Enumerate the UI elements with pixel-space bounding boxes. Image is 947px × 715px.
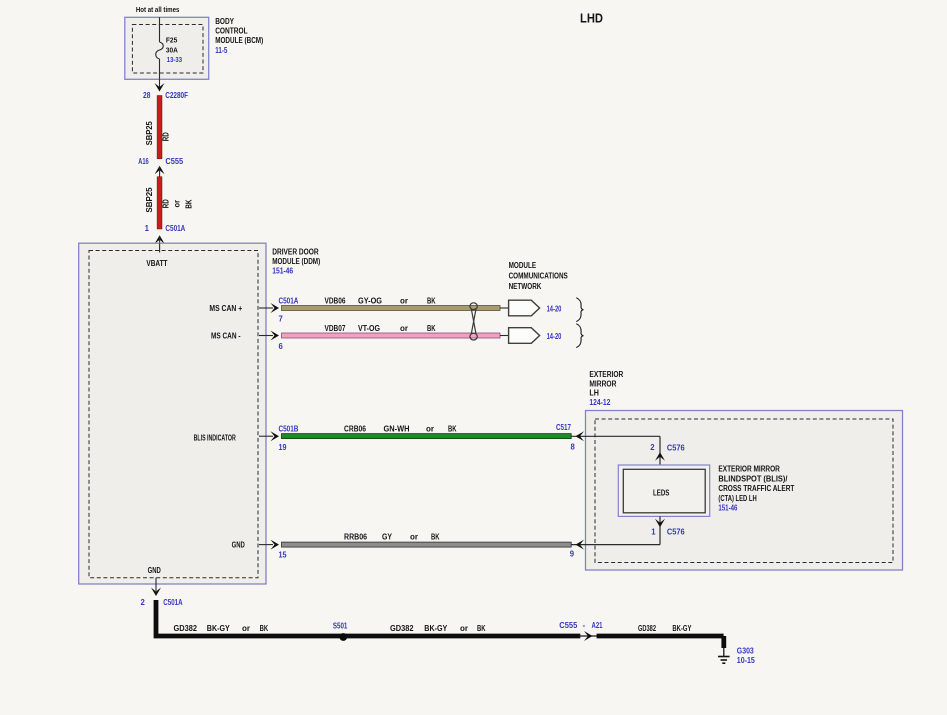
svg-text:(CTA) LED LH: (CTA) LED LH [718,494,756,503]
svg-text:GY: GY [382,532,393,541]
svg-text:or: or [400,296,408,305]
svg-text:SBP25: SBP25 [145,187,154,213]
svg-text:BK-GY: BK-GY [424,624,448,633]
svg-text:SBP25: SBP25 [145,121,154,146]
svg-text:GD382: GD382 [174,624,198,633]
svg-text:LEDS: LEDS [653,488,670,497]
svg-text:CRB06: CRB06 [344,425,366,434]
svg-text:14-20: 14-20 [547,304,562,313]
svg-text:MODULE (DDM): MODULE (DDM) [272,257,320,266]
svg-text:or: or [172,200,181,208]
svg-text:GND: GND [232,540,245,549]
svg-text:151-46: 151-46 [272,267,293,276]
svg-text:14-20: 14-20 [547,332,562,341]
svg-text:10-15: 10-15 [737,656,755,665]
svg-text:MODULE (BCM): MODULE (BCM) [215,36,263,45]
svg-text:C2280F: C2280F [165,91,188,100]
svg-text:BK: BK [431,532,440,541]
svg-text:EXTERIOR: EXTERIOR [589,370,623,379]
svg-text:DRIVER DOOR: DRIVER DOOR [272,248,319,257]
svg-text:19: 19 [279,443,287,452]
svg-text:GN-WH: GN-WH [384,425,410,434]
svg-text:BLINDSPOT (BLIS)/: BLINDSPOT (BLIS)/ [718,475,788,484]
svg-text:C501A: C501A [279,296,299,305]
svg-text:LH: LH [589,389,599,398]
svg-text:9: 9 [570,549,575,558]
svg-text:C501A: C501A [163,598,182,607]
svg-text:28: 28 [143,91,151,100]
svg-text:LHD: LHD [580,12,603,26]
svg-text:BK: BK [260,624,269,633]
svg-text:BK: BK [185,199,194,208]
svg-text:11-5: 11-5 [215,46,228,55]
svg-text:MS CAN +: MS CAN + [209,304,242,313]
svg-text:C555: C555 [165,157,183,166]
svg-text:30A: 30A [166,45,179,54]
svg-text:8: 8 [571,442,576,451]
svg-text:S501: S501 [333,622,348,631]
svg-text:151-46: 151-46 [718,503,737,512]
svg-text:RRB06: RRB06 [344,532,367,541]
svg-text:C501A: C501A [165,224,185,233]
svg-text:1: 1 [651,528,656,537]
svg-text:VT-OG: VT-OG [358,324,380,333]
svg-text:RD: RD [162,199,171,208]
svg-text:VBATT: VBATT [146,259,167,268]
svg-text:Hot at all times: Hot at all times [136,5,180,14]
svg-text:NETWORK: NETWORK [509,282,542,291]
svg-text:C501B: C501B [279,425,299,434]
svg-text:MODULE: MODULE [509,261,537,270]
svg-text:124-12: 124-12 [589,398,610,407]
svg-text:-: - [583,621,586,630]
svg-text:or: or [242,624,250,633]
svg-text:13-33: 13-33 [167,55,182,64]
svg-text:BK-GY: BK-GY [672,624,691,633]
svg-text:15: 15 [279,551,287,560]
svg-text:6: 6 [279,342,284,351]
svg-text:A16: A16 [138,157,149,166]
svg-text:2: 2 [141,598,146,607]
svg-text:RD: RD [162,132,171,141]
svg-text:C576: C576 [667,443,685,452]
svg-text:BK: BK [427,324,436,333]
svg-text:CONTROL: CONTROL [215,27,248,36]
svg-text:MS CAN -: MS CAN - [211,332,241,341]
svg-text:COMMUNICATIONS: COMMUNICATIONS [509,272,569,281]
svg-text:EXTERIOR MIRROR: EXTERIOR MIRROR [718,465,780,474]
svg-text:BLIS INDICATOR: BLIS INDICATOR [194,433,236,442]
svg-text:BODY: BODY [215,17,234,26]
svg-text:A21: A21 [592,621,603,630]
svg-text:F25: F25 [166,36,177,45]
svg-text:C517: C517 [556,423,571,432]
svg-text:1: 1 [145,224,150,233]
svg-text:C555: C555 [559,621,578,630]
svg-text:BK-GY: BK-GY [207,624,231,633]
svg-text:2: 2 [650,443,655,452]
svg-text:VDB07: VDB07 [325,324,346,333]
svg-text:GND: GND [148,566,161,575]
svg-text:or: or [400,324,408,333]
svg-text:BK: BK [448,425,457,434]
svg-text:G303: G303 [737,647,754,656]
svg-text:MIRROR: MIRROR [589,379,616,388]
svg-text:or: or [426,425,434,434]
svg-text:BK: BK [427,296,436,305]
svg-text:VDB06: VDB06 [325,296,346,305]
svg-text:GD382: GD382 [638,624,656,633]
svg-text:GD382: GD382 [390,624,414,633]
svg-text:7: 7 [279,314,284,323]
svg-text:BK: BK [477,624,486,633]
svg-text:CROSS TRAFFIC ALERT: CROSS TRAFFIC ALERT [718,484,794,493]
svg-text:or: or [460,624,468,633]
svg-text:C576: C576 [667,528,685,537]
svg-text:or: or [410,532,418,541]
svg-text:GY-OG: GY-OG [358,296,382,305]
